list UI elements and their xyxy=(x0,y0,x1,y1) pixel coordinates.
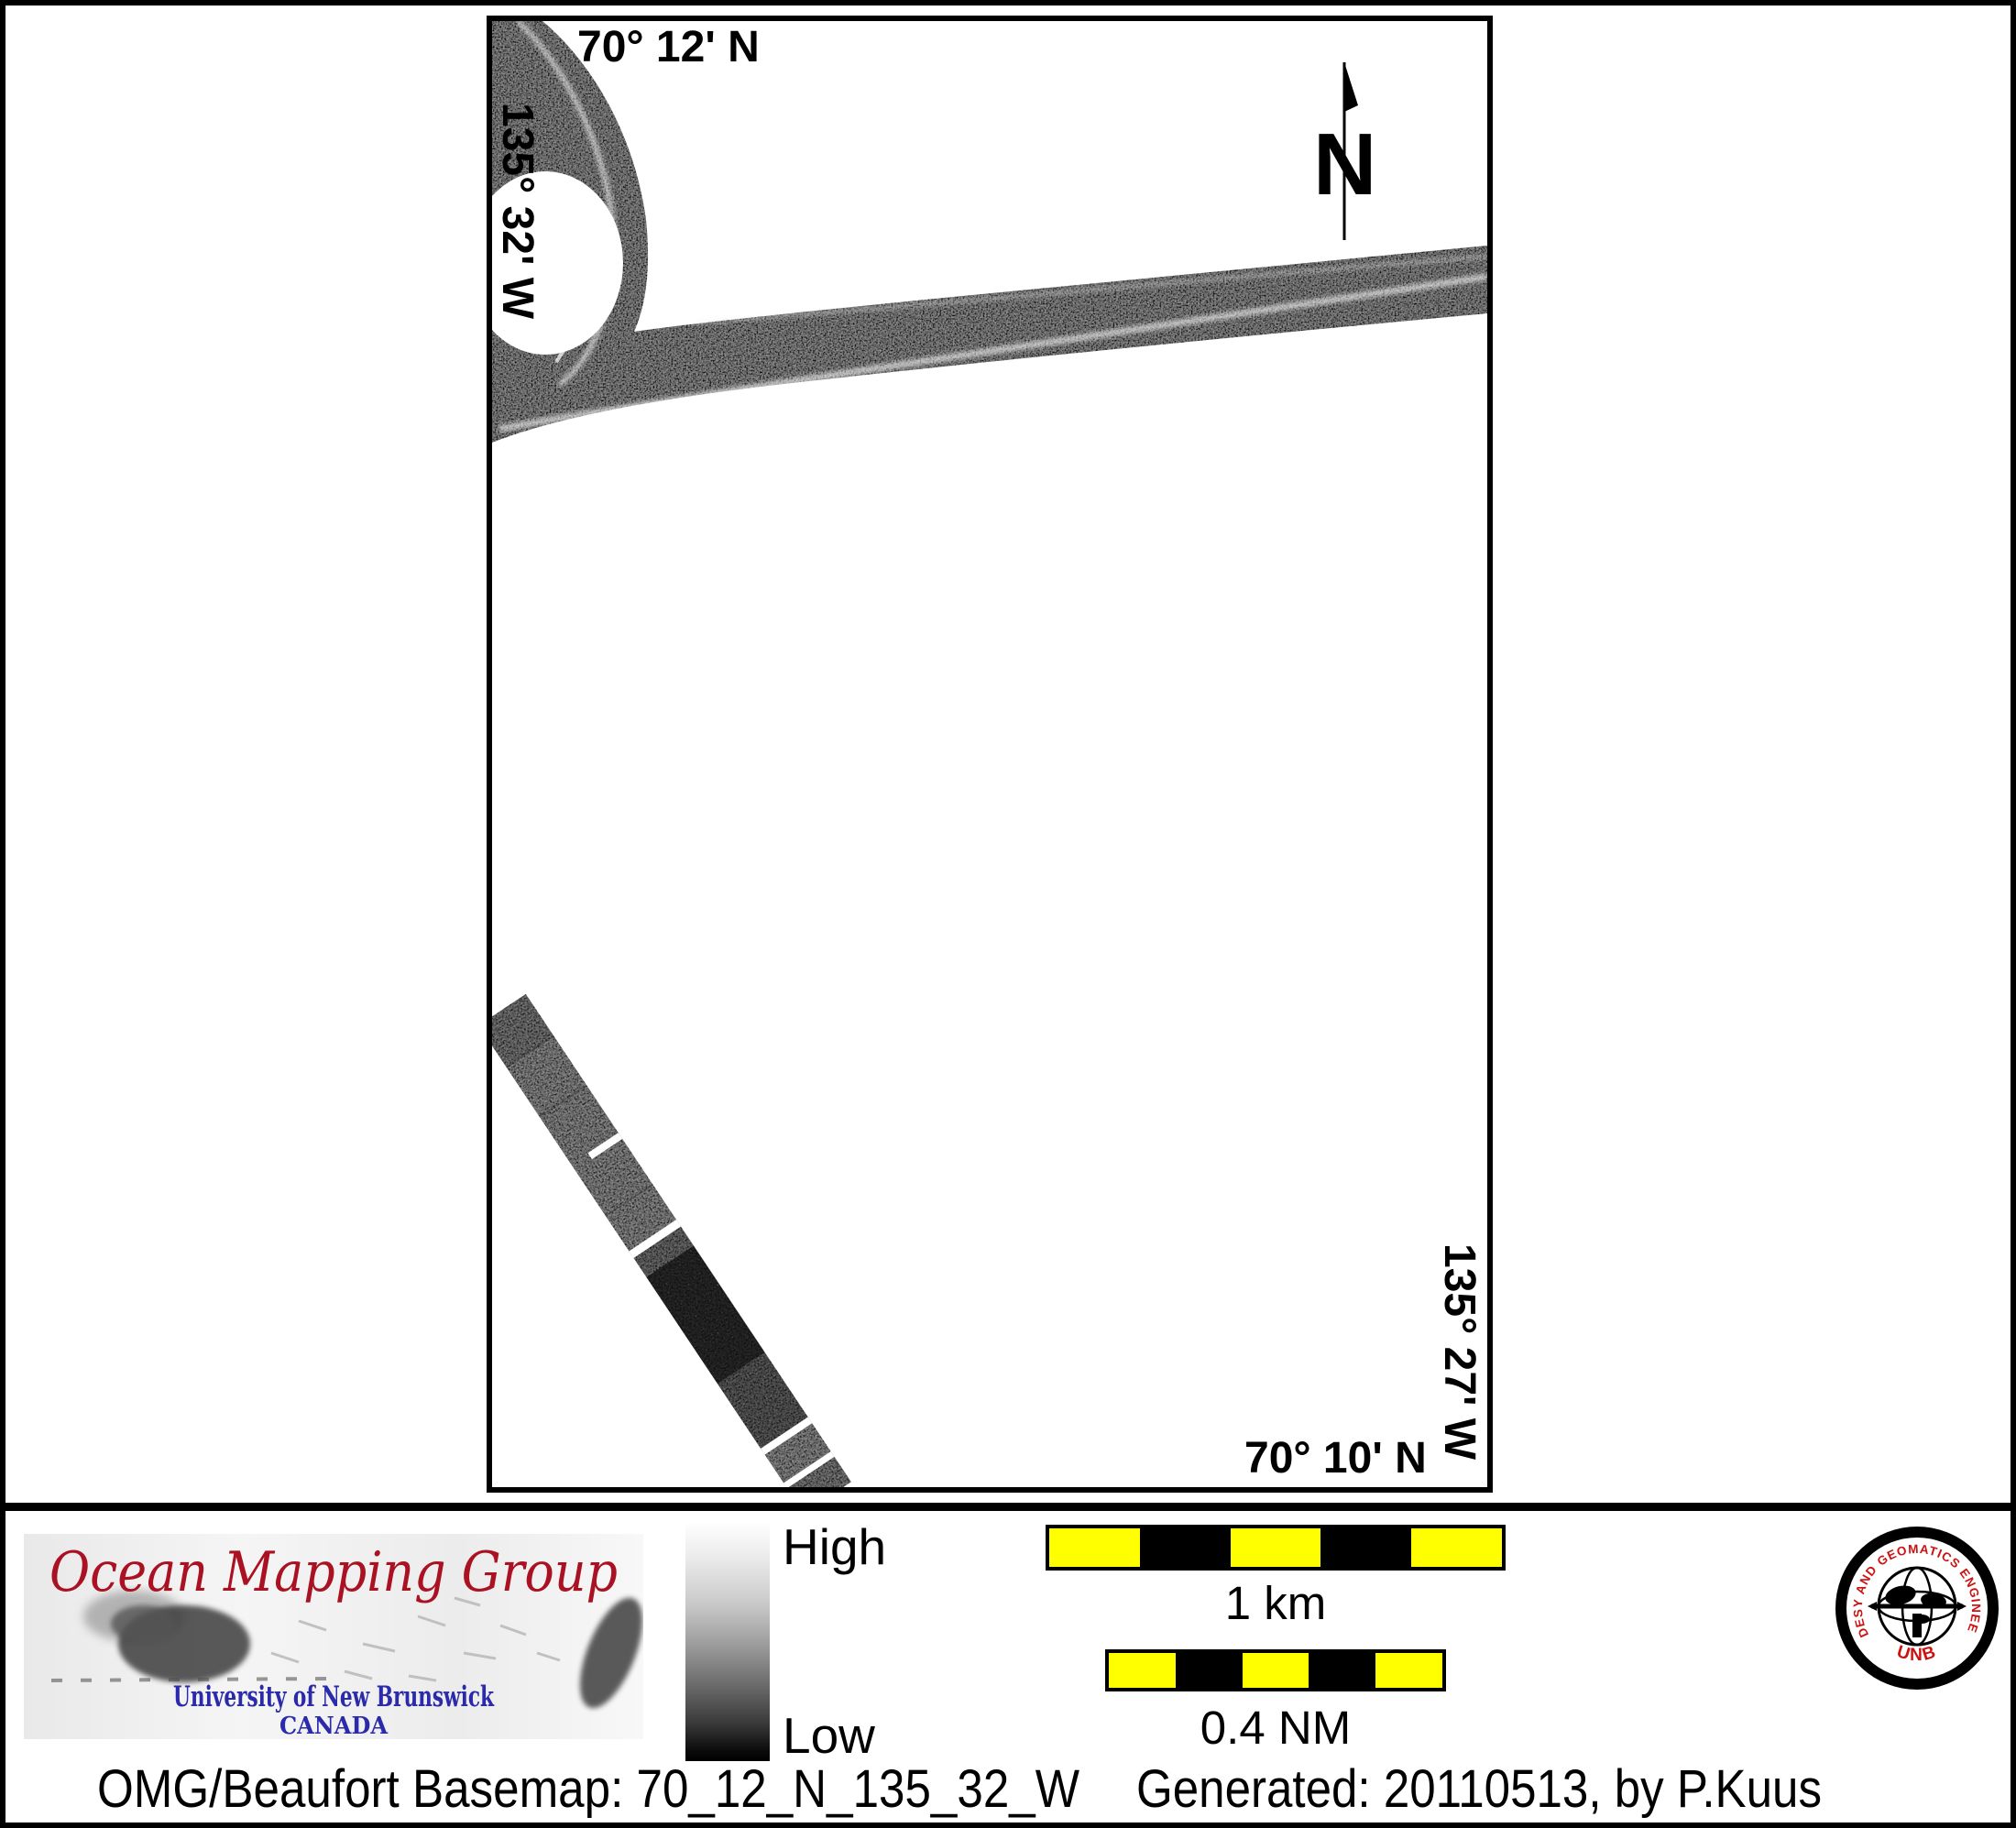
footer-generated-text: Generated: 20110513, by P.Kuus xyxy=(1136,1759,1822,1819)
colorbar-low-label: Low xyxy=(783,1706,875,1765)
scalebar-nm-label: 0.4 NM xyxy=(1105,1701,1446,1755)
sonar-swath-diagonal xyxy=(492,994,851,1487)
scalebar-segment xyxy=(1320,1528,1411,1567)
north-arrow-letter: N xyxy=(1313,115,1376,213)
scalebar-segment xyxy=(1049,1528,1140,1567)
omg-logo-university: University of New Brunswick xyxy=(173,1680,495,1713)
scalebar-segment xyxy=(1176,1653,1243,1688)
footer-caption: OMG/Beaufort Basemap: 70_12_N_135_32_W G… xyxy=(0,1757,2016,1823)
intensity-colorbar xyxy=(685,1523,770,1761)
colorbar-high-label: High xyxy=(783,1517,886,1576)
scalebar-segment xyxy=(1231,1528,1321,1567)
scalebar-km xyxy=(1046,1525,1506,1571)
omg-logo-country: CANADA xyxy=(279,1713,389,1739)
omg-logo: Ocean Mapping Group University of New Br… xyxy=(24,1534,643,1739)
omg-logo-title: Ocean Mapping Group xyxy=(49,1540,618,1604)
sonar-map-canvas: 70° 12' N 135° 32' W 135° 27' W 70° 10' … xyxy=(492,21,1487,1487)
scalebar-nm xyxy=(1105,1649,1446,1691)
scalebar-segment xyxy=(1411,1528,1502,1567)
scalebar-km-label: 1 km xyxy=(1046,1576,1506,1630)
map-label-bottom-latitude: 70° 10' N xyxy=(1244,1434,1427,1483)
map-label-right-longitude: 135° 27' W xyxy=(1435,1243,1484,1461)
sonar-swath-main xyxy=(492,21,1487,443)
scalebar-segment xyxy=(1109,1653,1176,1688)
scalebar-segment xyxy=(1140,1528,1231,1567)
scalebar-segment xyxy=(1309,1653,1375,1688)
north-arrow-icon: N xyxy=(1313,62,1376,240)
map-label-left-longitude: 135° 32' W xyxy=(493,103,542,320)
scalebar-segment xyxy=(1243,1653,1309,1688)
scalebar-segment xyxy=(1375,1653,1442,1688)
map-label-top-latitude: 70° 12' N xyxy=(577,23,760,71)
footer-basemap-text: OMG/Beaufort Basemap: 70_12_N_135_32_W xyxy=(97,1759,1079,1819)
basemap-sheet: 70° 12' N 135° 32' W 135° 27' W 70° 10' … xyxy=(0,0,2016,1828)
unb-geodesy-seal: GEODESY AND GEOMATICS ENGINEERING UNB xyxy=(1835,1526,2000,1691)
footer-divider xyxy=(0,1503,2016,1511)
